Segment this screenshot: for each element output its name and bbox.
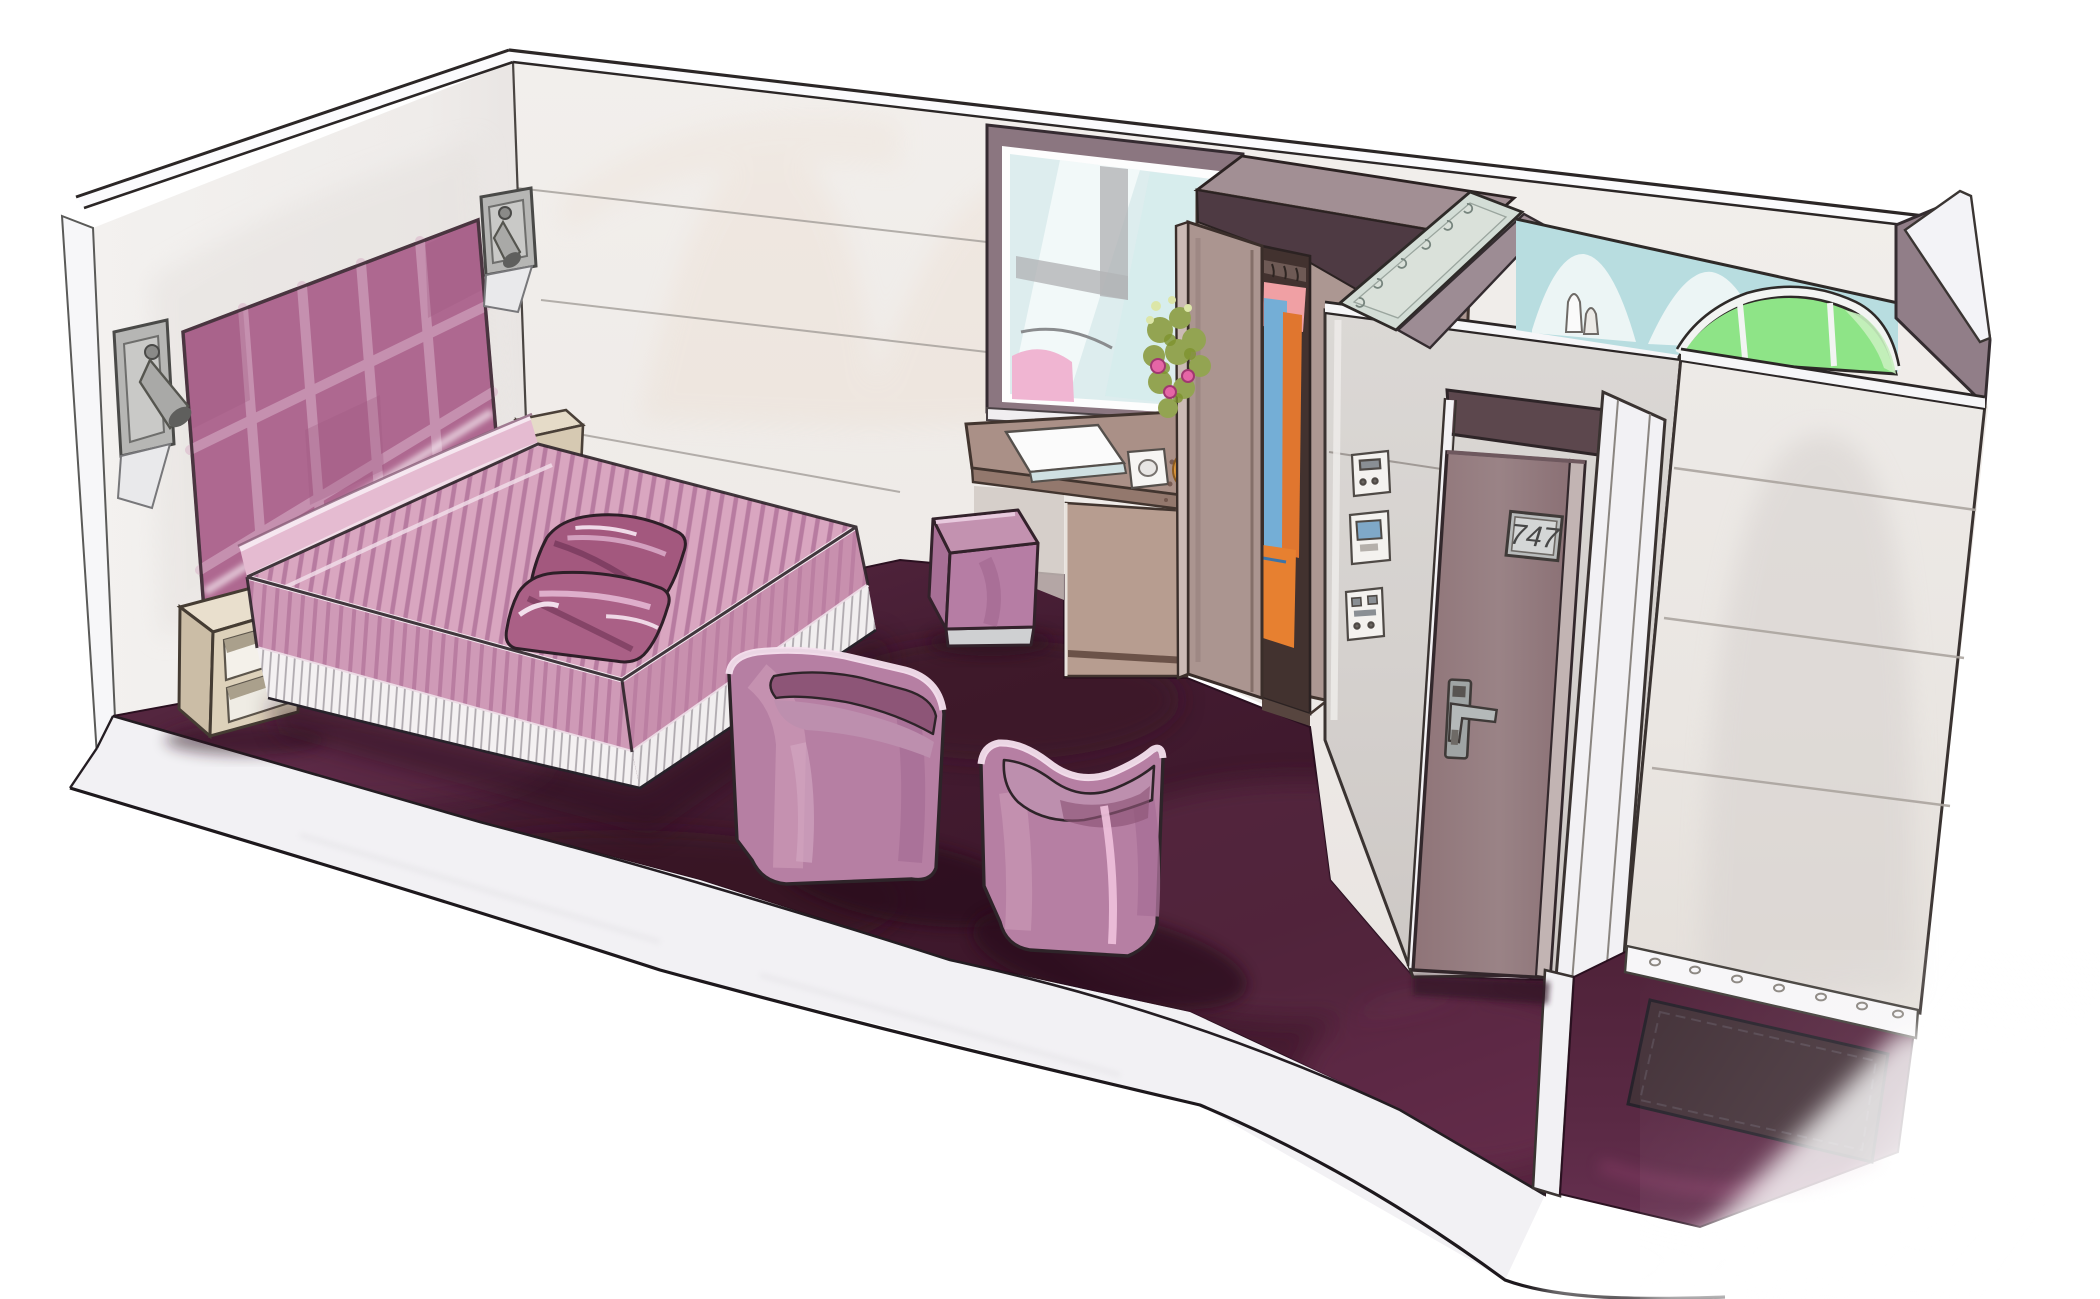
svg-text:747: 747 bbox=[1508, 519, 1561, 556]
